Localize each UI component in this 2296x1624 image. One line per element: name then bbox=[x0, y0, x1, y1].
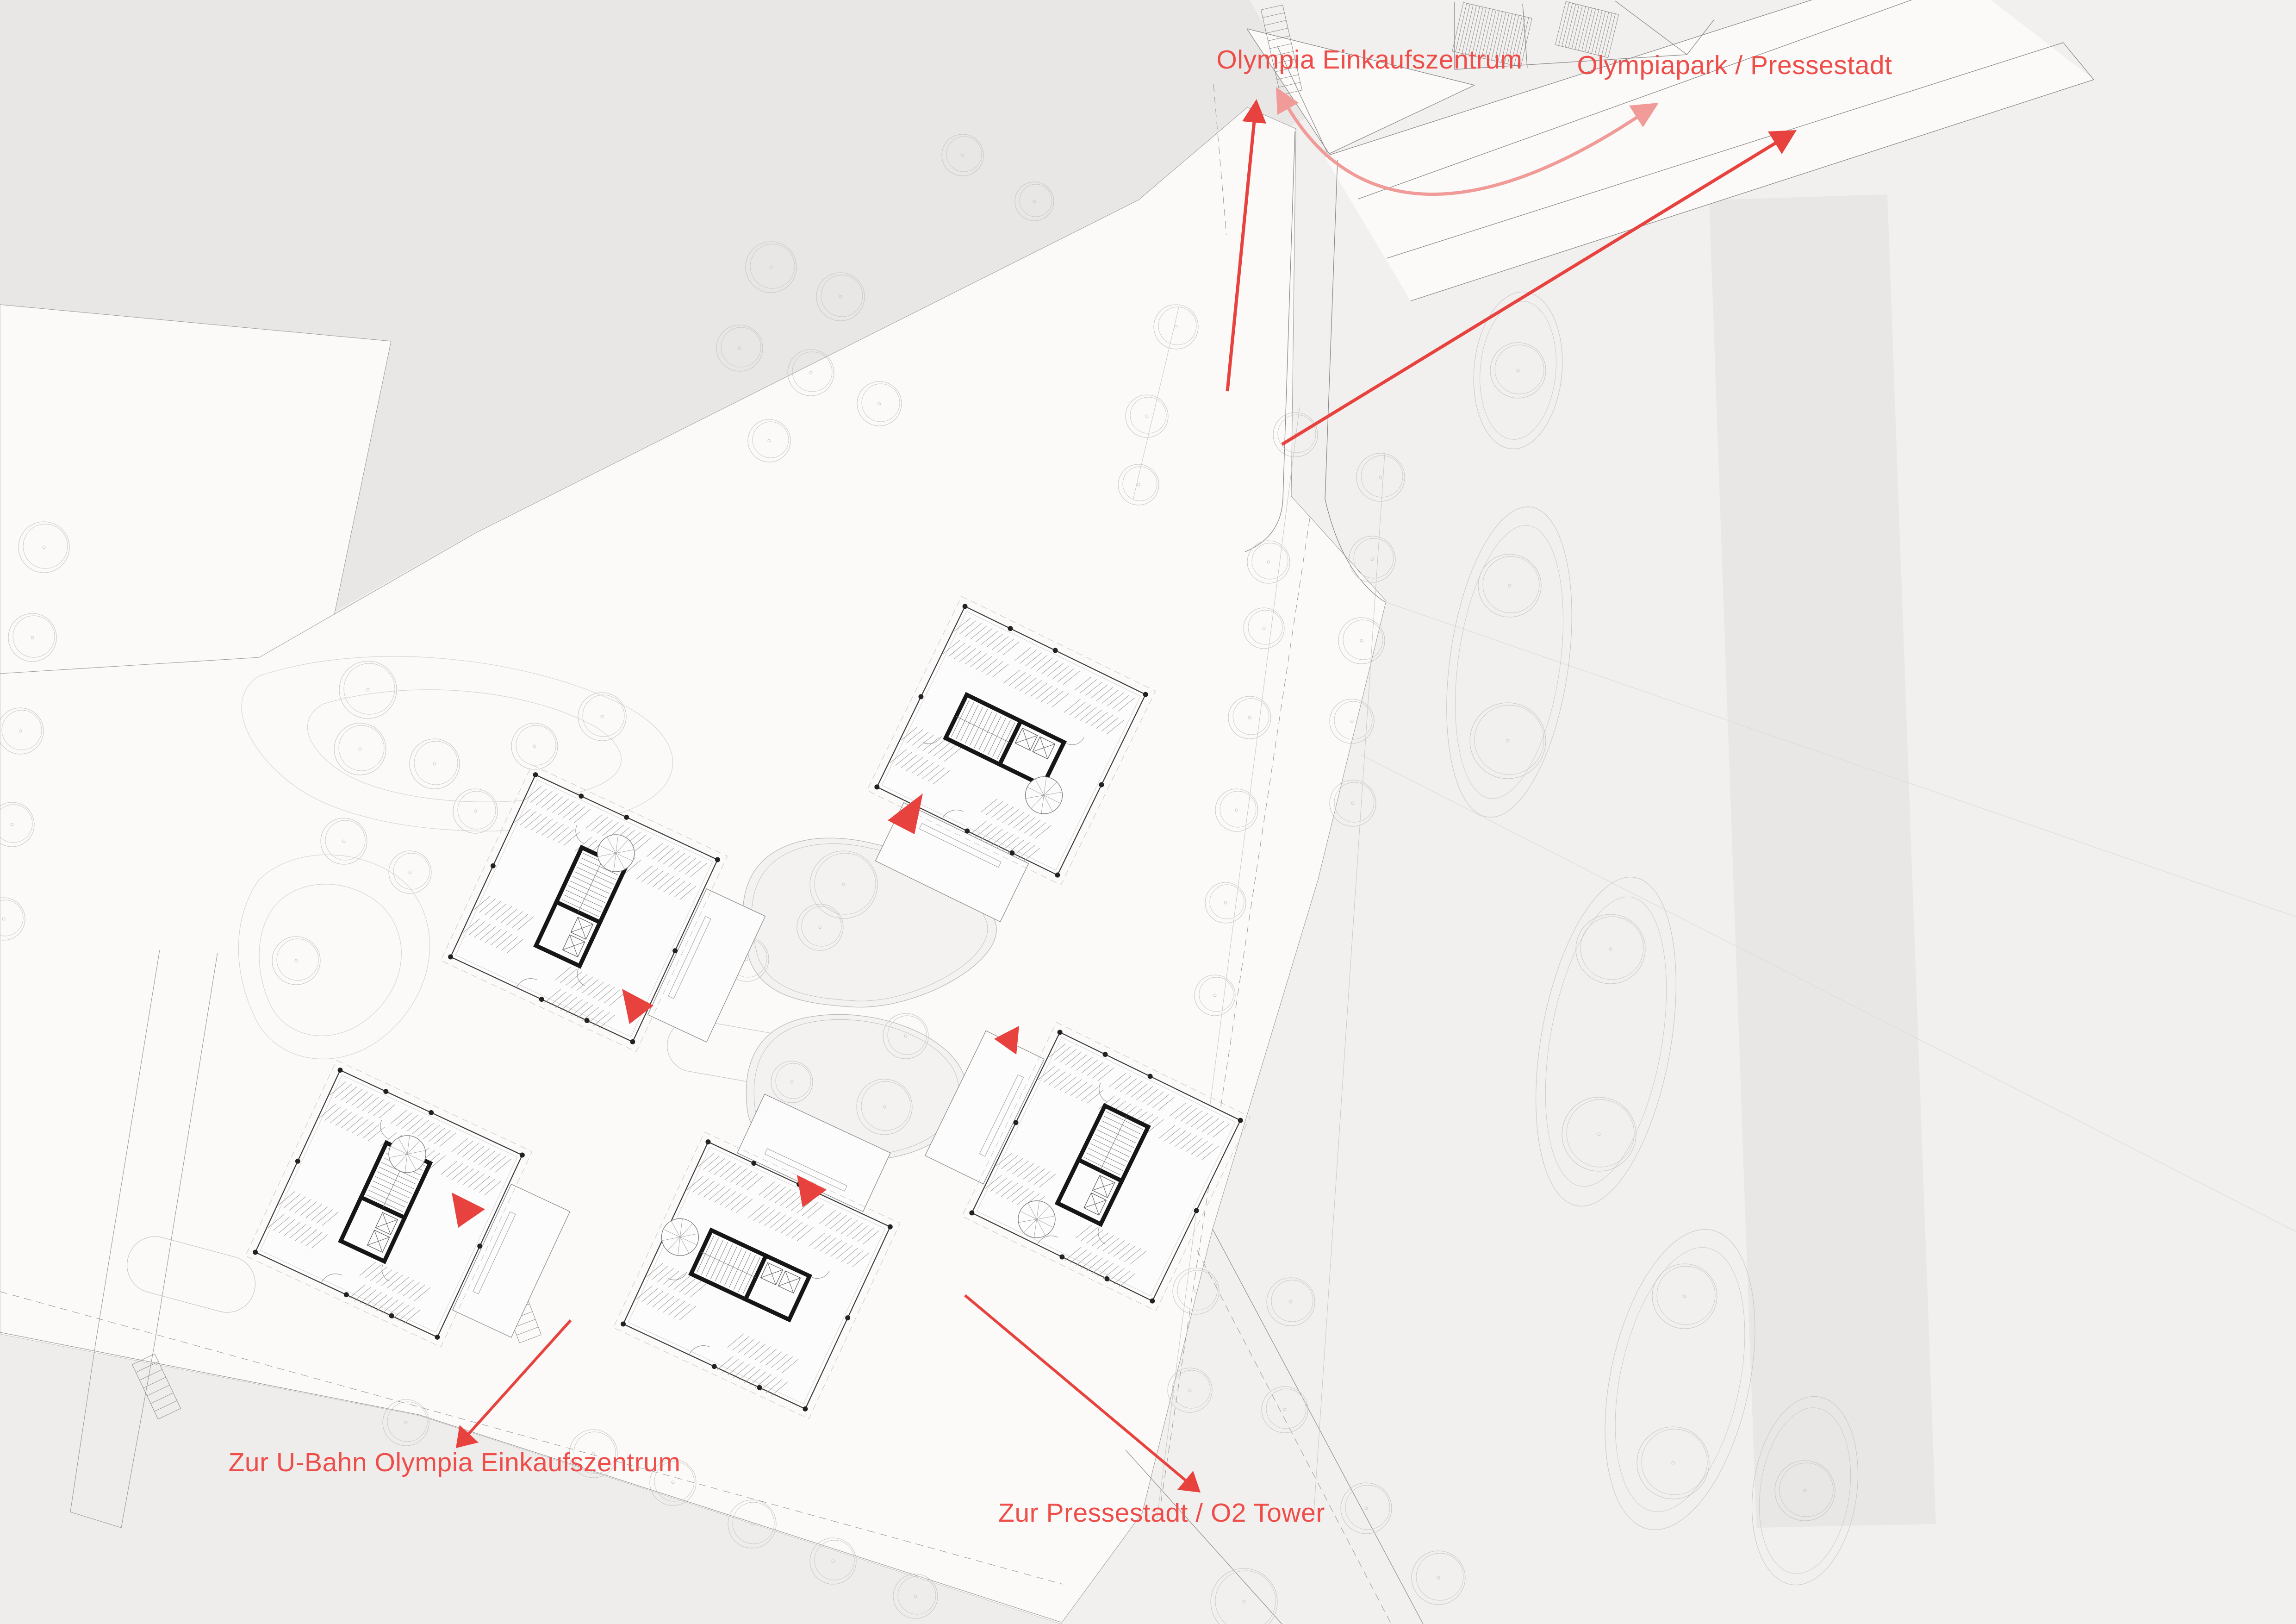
label-zur-ubahn: Zur U-Bahn Olympia Einkaufszentrum bbox=[229, 1448, 681, 1477]
site-plan-svg: Olympia Einkaufszentrum Olympiapark / Pr… bbox=[0, 0, 2296, 1624]
site-plan: Olympia Einkaufszentrum Olympiapark / Pr… bbox=[0, 0, 2296, 1624]
label-olympia-einkaufszentrum: Olympia Einkaufszentrum bbox=[1217, 45, 1523, 75]
label-olympiapark-pressestadt: Olympiapark / Pressestadt bbox=[1577, 50, 1892, 80]
label-zur-pressestadt-o2: Zur Pressestadt / O2 Tower bbox=[998, 1498, 1325, 1528]
drawing-layers bbox=[0, 0, 2296, 1624]
